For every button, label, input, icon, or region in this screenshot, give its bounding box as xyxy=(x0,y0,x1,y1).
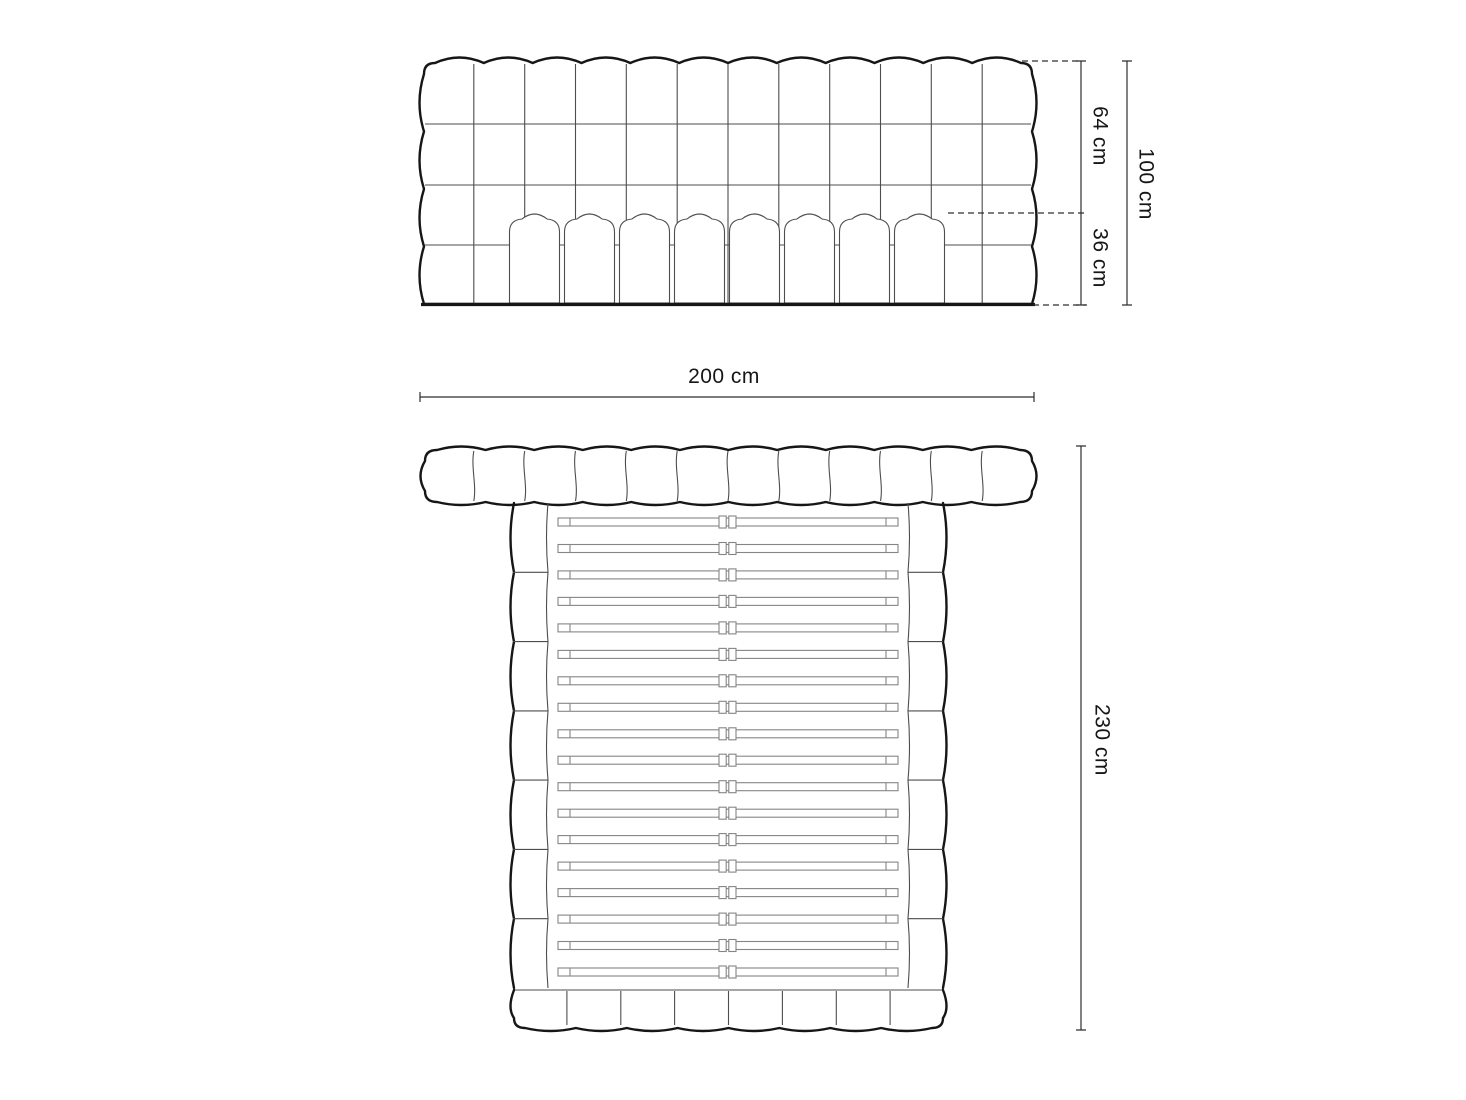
slat xyxy=(558,677,898,685)
slat-center-connector xyxy=(719,940,726,952)
slat-center-connector xyxy=(729,728,736,740)
left-rail-inner-edge xyxy=(547,503,549,988)
mattress-segment xyxy=(730,214,780,303)
top-headboard-divider xyxy=(473,451,475,501)
slat xyxy=(558,942,898,950)
slat xyxy=(558,862,898,870)
slat-center-connector xyxy=(729,834,736,846)
slat xyxy=(558,650,898,658)
slat xyxy=(558,597,898,605)
top-headboard-divider xyxy=(829,451,831,501)
slat-center-connector xyxy=(729,940,736,952)
length-dimension: 230 cm xyxy=(1076,446,1114,1030)
slat xyxy=(558,915,898,923)
slat xyxy=(558,624,898,632)
mattress-segment xyxy=(675,214,725,303)
slat-center-connector xyxy=(729,595,736,607)
top-headboard-divider xyxy=(676,451,678,501)
right-rail-inner-edge xyxy=(908,503,910,988)
top-headboard-divider xyxy=(625,451,627,501)
slat xyxy=(558,518,898,526)
slat-center-connector xyxy=(729,543,736,555)
slat-base xyxy=(558,516,898,978)
height-dimensions: 64 cm 36 cm 100 cm xyxy=(948,61,1158,305)
slat xyxy=(558,703,898,711)
right-rail-outer-edge xyxy=(943,503,947,988)
mattress-segment xyxy=(895,214,945,303)
slat-center-connector xyxy=(719,675,726,687)
slat-center-connector xyxy=(729,754,736,766)
slat-center-connector xyxy=(729,807,736,819)
slat-center-connector xyxy=(719,622,726,634)
slat-center-connector xyxy=(719,516,726,528)
slat-center-connector xyxy=(729,913,736,925)
mattress-segment xyxy=(620,214,670,303)
slat xyxy=(558,571,898,579)
top-headboard-divider xyxy=(575,451,577,501)
slat-center-connector xyxy=(719,860,726,872)
slat-center-connector xyxy=(719,781,726,793)
label-lower-height: 36 cm xyxy=(1089,228,1112,288)
slat-center-connector xyxy=(729,622,736,634)
bed-top-view xyxy=(421,447,1037,1032)
slat-center-connector xyxy=(719,595,726,607)
slat-center-connector xyxy=(719,728,726,740)
diagram-page: 64 cm 36 cm 100 cm 200 cm 230 cm xyxy=(0,0,1466,1100)
slat-center-connector xyxy=(729,675,736,687)
label-bed-length: 230 cm xyxy=(1091,704,1114,776)
slat-center-connector xyxy=(719,887,726,899)
slat xyxy=(558,968,898,976)
slat xyxy=(558,889,898,897)
mattress-segment xyxy=(565,214,615,303)
mattress-segment xyxy=(840,214,890,303)
slat-center-connector xyxy=(719,569,726,581)
slat-center-connector xyxy=(719,807,726,819)
slat-center-connector xyxy=(729,516,736,528)
slat xyxy=(558,730,898,738)
top-headboard-divider xyxy=(727,451,729,501)
bed-dimension-diagram: 64 cm 36 cm 100 cm 200 cm 230 cm xyxy=(0,0,1466,1100)
slat-center-connector xyxy=(719,913,726,925)
slat xyxy=(558,836,898,844)
label-bed-width: 200 cm xyxy=(688,365,760,388)
left-rail-outer-edge xyxy=(511,503,515,988)
slat-center-connector xyxy=(719,701,726,713)
top-headboard-divider xyxy=(981,451,983,501)
slat xyxy=(558,756,898,764)
footboard xyxy=(511,990,947,1031)
slat-center-connector xyxy=(729,781,736,793)
top-headboard-divider xyxy=(524,451,526,501)
slat-center-connector xyxy=(729,966,736,978)
slat xyxy=(558,809,898,817)
mattress-front xyxy=(510,214,945,303)
top-headboard-dividers xyxy=(473,451,983,501)
slat-center-connector xyxy=(719,834,726,846)
slat-center-connector xyxy=(719,648,726,660)
slat-center-connector xyxy=(729,887,736,899)
slat-center-connector xyxy=(729,701,736,713)
slat-center-connector xyxy=(729,860,736,872)
headboard-front-view xyxy=(420,58,1037,305)
slat xyxy=(558,545,898,553)
width-dimension: 200 cm xyxy=(420,365,1034,402)
top-headboard-divider xyxy=(880,451,882,501)
label-upper-height: 64 cm xyxy=(1089,106,1112,166)
mattress-segment xyxy=(785,214,835,303)
slat-center-connector xyxy=(719,754,726,766)
slat xyxy=(558,783,898,791)
top-headboard-divider xyxy=(930,451,932,501)
label-total-height: 100 cm xyxy=(1135,148,1158,220)
slat-center-connector xyxy=(719,543,726,555)
slat-center-connector xyxy=(729,569,736,581)
mattress-segment xyxy=(510,214,560,303)
slat-center-connector xyxy=(719,966,726,978)
top-headboard-divider xyxy=(778,451,780,501)
slat-center-connector xyxy=(729,648,736,660)
